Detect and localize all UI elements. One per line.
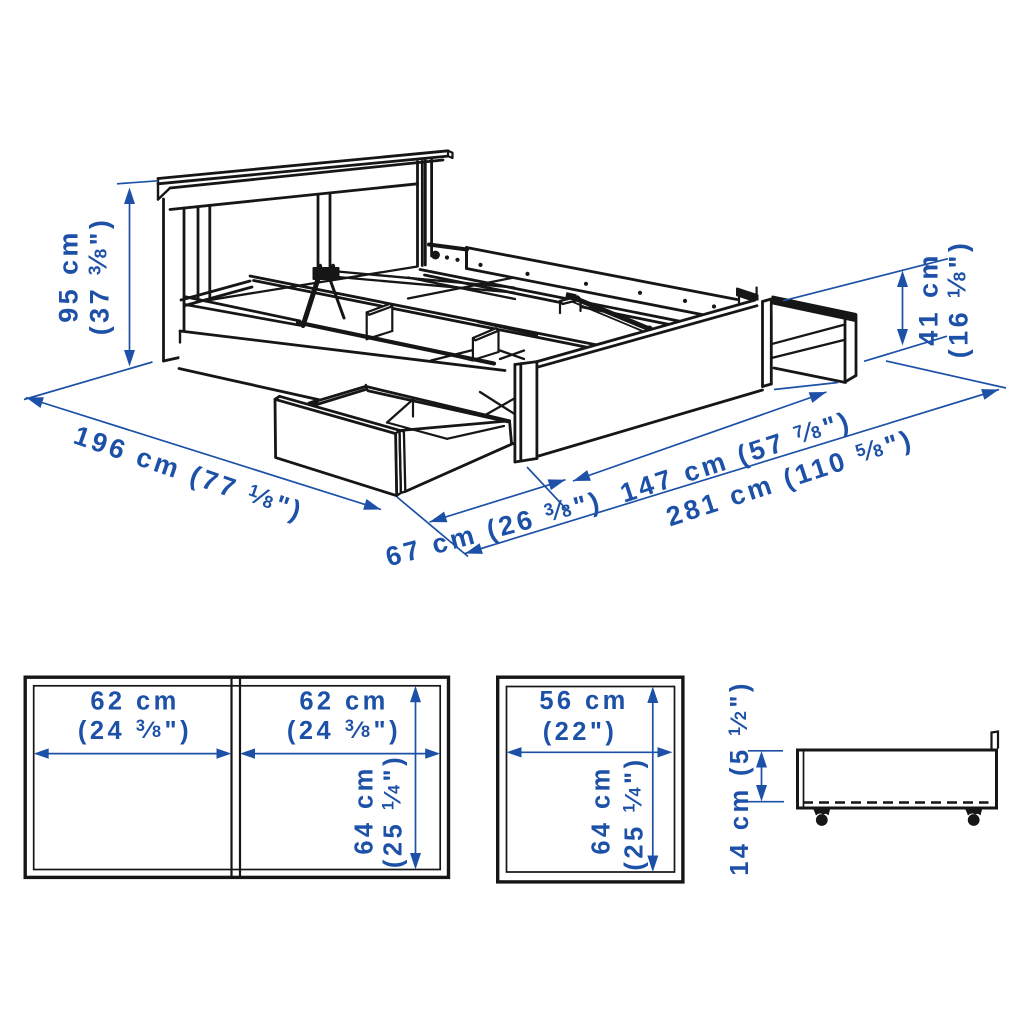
svg-text:(25 1⁄4"): (25 1⁄4") — [621, 756, 649, 870]
svg-text:41 cm: 41 cm — [914, 252, 944, 346]
svg-text:(25 1⁄4"): (25 1⁄4") — [380, 754, 408, 868]
svg-text:64 cm: 64 cm — [351, 765, 379, 854]
svg-text:(22"): (22") — [543, 718, 617, 746]
svg-text:95 cm: 95 cm — [54, 229, 84, 323]
svg-text:56 cm: 56 cm — [539, 687, 628, 715]
svg-text:64 cm: 64 cm — [588, 765, 616, 854]
svg-text:(16 1⁄8"): (16 1⁄8") — [943, 240, 973, 358]
svg-text:62 cm: 62 cm — [90, 688, 179, 716]
svg-text:(37 3⁄8"): (37 3⁄8") — [84, 217, 114, 335]
svg-text:(24 3⁄8"): (24 3⁄8") — [287, 717, 401, 745]
svg-text:62 cm: 62 cm — [299, 688, 388, 716]
svg-text:(24 3⁄8"): (24 3⁄8") — [78, 717, 192, 745]
